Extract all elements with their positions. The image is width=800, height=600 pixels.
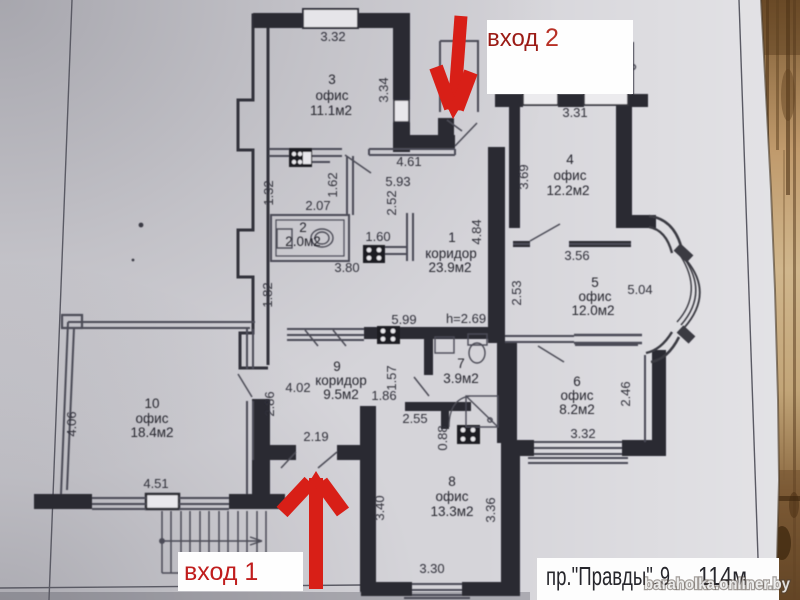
svg-text:1: 1 — [448, 230, 456, 245]
svg-text:2.55: 2.55 — [402, 411, 427, 426]
svg-text:1.62: 1.62 — [325, 172, 340, 197]
svg-text:офис: офис — [579, 289, 612, 304]
svg-text:4.02: 4.02 — [285, 380, 310, 395]
svg-text:3.30: 3.30 — [419, 561, 444, 576]
svg-text:2.19: 2.19 — [303, 429, 328, 444]
svg-text:0.88: 0.88 — [435, 425, 450, 450]
svg-text:4.84: 4.84 — [469, 219, 484, 244]
svg-text:вход 2: вход 2 — [487, 24, 559, 52]
svg-text:11.1м2: 11.1м2 — [310, 103, 352, 118]
svg-text:12.0м2: 12.0м2 — [571, 303, 614, 318]
svg-text:9.5м2: 9.5м2 — [323, 387, 359, 402]
svg-text:8: 8 — [448, 474, 456, 489]
svg-text:5: 5 — [591, 275, 599, 290]
svg-text:1.60: 1.60 — [365, 229, 390, 244]
svg-text:5.04: 5.04 — [627, 282, 652, 297]
svg-text:3.36: 3.36 — [483, 497, 498, 522]
svg-text:офис: офис — [316, 88, 349, 103]
svg-text:4.06: 4.06 — [64, 411, 79, 436]
svg-text:1.82: 1.82 — [260, 282, 275, 307]
svg-text:офис: офис — [436, 489, 469, 504]
svg-text:2.46: 2.46 — [618, 381, 633, 406]
svg-text:3.80: 3.80 — [334, 260, 359, 275]
svg-text:3.9м2: 3.9м2 — [443, 371, 479, 386]
svg-text:3: 3 — [328, 72, 336, 87]
svg-text:4: 4 — [566, 152, 574, 167]
svg-text:4.51: 4.51 — [143, 476, 168, 491]
svg-text:3.69: 3.69 — [516, 164, 531, 189]
svg-text:пр."Правды",: пр."Правды", — [546, 561, 658, 591]
svg-text:2.07: 2.07 — [305, 198, 330, 213]
svg-text:3.31: 3.31 — [562, 105, 587, 120]
svg-text:4.61: 4.61 — [396, 154, 421, 169]
svg-text:коридор: коридор — [425, 246, 477, 261]
svg-text:5.99: 5.99 — [391, 312, 416, 327]
svg-text:3.32: 3.32 — [570, 426, 595, 441]
svg-text:h=2.69: h=2.69 — [446, 311, 486, 326]
svg-text:1.57: 1.57 — [384, 365, 399, 390]
svg-text:9: 9 — [333, 359, 341, 374]
svg-text:3.32: 3.32 — [320, 29, 345, 44]
svg-text:3.34: 3.34 — [376, 77, 391, 102]
svg-text:7: 7 — [457, 356, 465, 371]
svg-text:5.93: 5.93 — [385, 174, 410, 189]
svg-text:3.56: 3.56 — [564, 248, 589, 263]
svg-text:2.0м2: 2.0м2 — [285, 234, 321, 249]
svg-text:1.32: 1.32 — [261, 180, 276, 205]
svg-text:2.52: 2.52 — [384, 190, 399, 215]
svg-text:6: 6 — [573, 374, 581, 389]
svg-text:2.86: 2.86 — [262, 391, 277, 416]
svg-text:офис: офис — [554, 168, 587, 183]
svg-text:3.40: 3.40 — [372, 495, 387, 520]
svg-text:13.3м2: 13.3м2 — [430, 504, 473, 519]
svg-text:18.4м2: 18.4м2 — [130, 425, 173, 440]
svg-text:2: 2 — [299, 220, 307, 235]
svg-text:10: 10 — [144, 396, 159, 411]
svg-text:коридор: коридор — [315, 373, 367, 388]
svg-text:вход 1: вход 1 — [184, 558, 258, 586]
svg-text:2.53: 2.53 — [509, 280, 524, 305]
svg-text:23.9м2: 23.9м2 — [428, 260, 471, 275]
svg-text:12.2м2: 12.2м2 — [546, 183, 589, 198]
svg-text:8.2м2: 8.2м2 — [559, 402, 595, 417]
svg-text:офис: офис — [136, 411, 169, 426]
svg-text:baraholka.onliner.by: baraholka.onliner.by — [644, 576, 790, 593]
svg-text:офис: офис — [561, 388, 594, 403]
